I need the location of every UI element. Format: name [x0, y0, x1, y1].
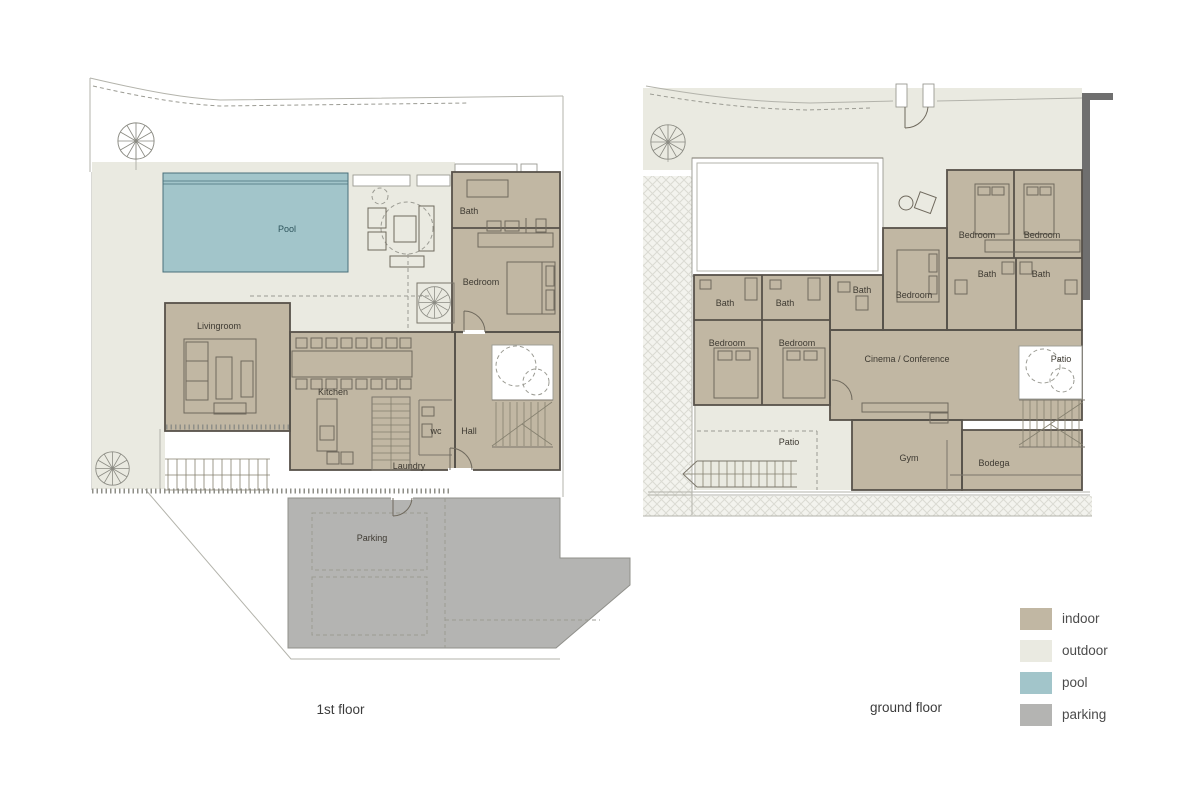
room-label-bath: Bath: [716, 298, 735, 308]
legend-label-parking: parking: [1062, 704, 1106, 726]
room-label-laundry: Laundry: [393, 461, 426, 471]
room-label-bath: Bath: [776, 298, 795, 308]
room-label-bath: Bath: [460, 206, 479, 216]
spiral-stair-icon: [419, 287, 451, 319]
legend-swatch-parking: [1020, 704, 1052, 726]
legend-item-pool: pool: [1020, 672, 1108, 694]
retaining-wall: [1082, 98, 1090, 300]
legend-label-pool: pool: [1062, 672, 1088, 694]
room-label-bedroom: Bedroom: [779, 338, 816, 348]
room-label-bedroom: Bedroom: [896, 290, 933, 300]
parking-area: [288, 498, 630, 648]
room-label-bath: Bath: [978, 269, 997, 279]
legend: indoor outdoor pool parking: [1020, 608, 1108, 736]
room-label-bodega: Bodega: [978, 458, 1009, 468]
legend-item-outdoor: outdoor: [1020, 640, 1108, 662]
gate-pillar: [896, 84, 907, 107]
room-label-hall: Hall: [461, 426, 477, 436]
room-label-bath: Bath: [853, 285, 872, 295]
pool-area: [163, 173, 348, 272]
spiral-stair-icon: [118, 123, 154, 159]
legend-swatch-indoor: [1020, 608, 1052, 630]
room-label-bedroom: Bedroom: [463, 277, 500, 287]
spiral-stair-icon: [651, 125, 685, 159]
legend-swatch-outdoor: [1020, 640, 1052, 662]
room-label-patio: Patio: [1051, 354, 1072, 364]
room-label-wc: wc: [430, 426, 442, 436]
room-label-bedroom: Bedroom: [959, 230, 996, 240]
room-label-cinema: Cinema / Conference: [864, 354, 949, 364]
room-label-bedroom: Bedroom: [709, 338, 746, 348]
gate-pillar: [923, 84, 934, 107]
floor-plan-sheet: Pool: [0, 0, 1199, 798]
room-label-kitchen: Kitchen: [318, 387, 348, 397]
room-label-livingroom: Livingroom: [197, 321, 241, 331]
patio-left-area: [694, 405, 852, 490]
first-floor-title: 1st floor: [308, 702, 373, 717]
legend-label-indoor: indoor: [1062, 608, 1100, 630]
ground-floor-plan: Bath Bath Bath Bedroom Bedroom Bedroom B…: [643, 84, 1113, 516]
bedroom-bath-area: [452, 172, 560, 332]
room-label-bath: Bath: [1032, 269, 1051, 279]
ground-hatch: [643, 176, 692, 516]
hall-patio-void: [492, 345, 553, 400]
legend-item-parking: parking: [1020, 704, 1108, 726]
legend-item-indoor: indoor: [1020, 608, 1108, 630]
room-label-gym: Gym: [900, 453, 919, 463]
garden-staircase: [165, 459, 270, 490]
ground-floor-title: ground floor: [861, 700, 951, 715]
room-label-pool: Pool: [278, 224, 296, 234]
first-floor-plan: Pool: [90, 78, 630, 659]
room-label-parking: Parking: [357, 533, 388, 543]
legend-swatch-pool: [1020, 672, 1052, 694]
site-boundary-line: [90, 78, 563, 100]
room-label-patio: Patio: [779, 437, 800, 447]
pool-void: [692, 158, 883, 276]
spiral-stair-icon: [96, 452, 129, 485]
legend-label-outdoor: outdoor: [1062, 640, 1108, 662]
room-label-bedroom: Bedroom: [1024, 230, 1061, 240]
